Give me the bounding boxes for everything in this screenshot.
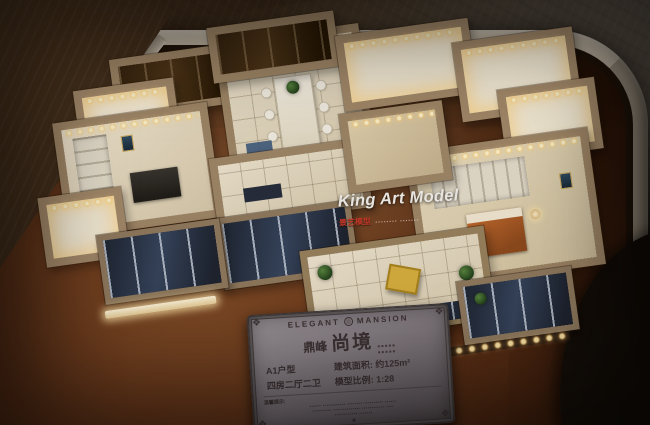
- blue-rug: [246, 140, 274, 158]
- plaque-side-row: ▪▪▪▪▪: [378, 348, 397, 354]
- balcony-plant: [474, 292, 488, 306]
- plaque-title-main: 尚境: [330, 327, 374, 357]
- photo-scale-model-scene: King Art Model 景艺模型 ▪▪▪▪▪▪▪▪ ▪▪▪▪▪▪▪ ❖ ❖…: [0, 0, 650, 425]
- dining-chair: [264, 110, 274, 120]
- nightstand-lamp: [530, 209, 541, 220]
- watermark-brand-cn: 景艺模型: [339, 217, 371, 228]
- ornament-icon: ❖: [252, 318, 262, 329]
- dark-sofa: [130, 167, 182, 203]
- plaque-emblem-icon: [344, 317, 354, 327]
- balcony-plant: [458, 264, 475, 281]
- ornament-icon: ❖: [441, 409, 451, 420]
- spec-layout: 四房二厅二卫: [266, 375, 335, 392]
- lit-interior-glimpse: [123, 244, 183, 274]
- model-info-plaque: ❖ ❖ ❖ ❖ ELEGANT MANSION 鼎峰 尚境 ▪▪▪▪▪ ▪▪▪▪…: [247, 303, 456, 425]
- wall-art: [559, 172, 573, 190]
- plaque-title-prefix: 鼎峰: [303, 337, 328, 355]
- plaque-brand-right: MANSION: [357, 313, 409, 325]
- balcony-plant: [316, 264, 333, 281]
- dining-chair: [319, 102, 329, 112]
- model-kitchen: [348, 109, 444, 185]
- dining-chair: [322, 124, 332, 134]
- watermark-tagline: ▪▪▪▪▪▪▪▪ ▪▪▪▪▪▪▪: [375, 217, 419, 225]
- dining-chair: [261, 88, 271, 98]
- window-glass: [391, 41, 453, 79]
- ornament-icon: ❖: [434, 307, 444, 318]
- navy-bench: [243, 183, 283, 202]
- wall-art: [120, 135, 134, 153]
- plaque-tips: 温馨提示: ▪▪▪▪▪▪ ▪▪▪▪▪▪▪▪▪▪▪▪ ▪▪▪▪▪▪▪▪ ▪▪▪▪▪…: [264, 386, 444, 425]
- yellow-lounge: [385, 264, 421, 295]
- plaque-brand-left: ELEGANT: [287, 318, 340, 330]
- plaque-title-side-text: ▪▪▪▪▪ ▪▪▪▪▪: [377, 342, 396, 354]
- dining-chair: [316, 80, 326, 90]
- ornament-icon: ❖: [258, 420, 268, 425]
